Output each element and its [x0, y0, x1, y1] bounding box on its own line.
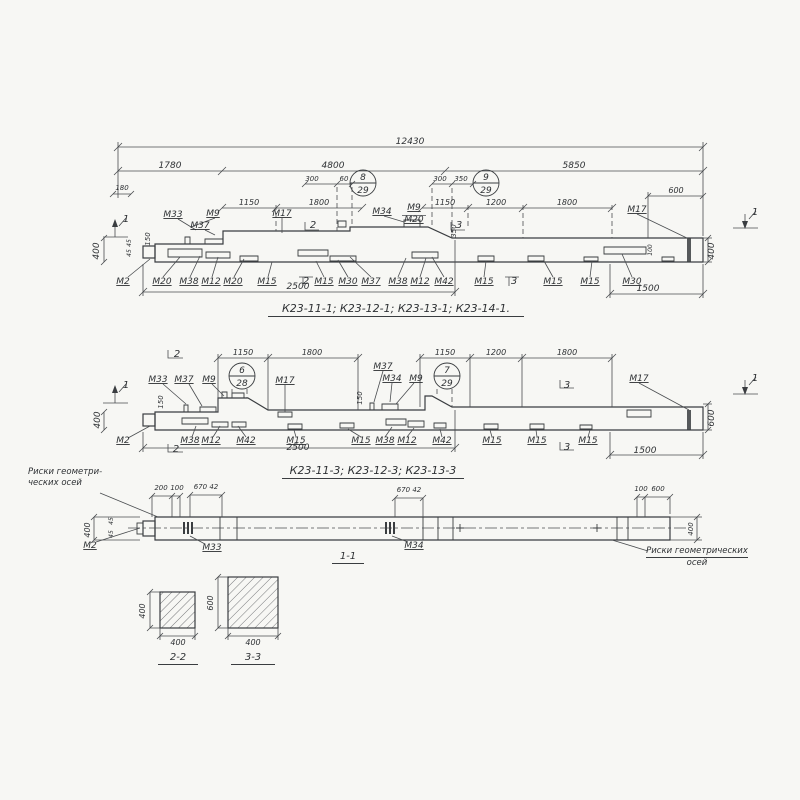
- annotation-label: М9: [407, 203, 421, 213]
- bar-outline: [155, 517, 670, 540]
- annotation-label: М42: [434, 277, 453, 287]
- view2-caption: К23-11-3; К23-12-3; К23-13-3: [282, 464, 464, 479]
- annotation-label: 45: [126, 249, 133, 257]
- sec2-dim-400v: [147, 589, 160, 631]
- view1-caption: К23-11-1; К23-12-1; К23-13-1; К23-14-1.: [268, 302, 524, 317]
- note-right-line2: осей: [687, 558, 708, 568]
- section3-caption: 3-3: [231, 652, 275, 665]
- annotation-label: 1780: [159, 161, 182, 171]
- detail-circle-number: 7: [444, 366, 450, 376]
- annotation-label: М34: [404, 541, 423, 551]
- note-axes-right: Риски геометрических осей: [612, 546, 782, 568]
- annotation-label: 3: [564, 442, 570, 453]
- annotation-label: 1800: [557, 348, 577, 357]
- annotation-label: М20: [223, 277, 242, 287]
- annotation-label: М38: [179, 277, 198, 287]
- detail-circle-number: 29: [480, 186, 492, 196]
- annotation-label: 45: [108, 517, 115, 525]
- annotation-label: 2500: [287, 443, 310, 453]
- annotation-label: М12: [201, 436, 220, 446]
- view1-beam-elevation: [101, 142, 758, 298]
- beam1-left-tenon: [143, 246, 155, 258]
- annotation-label: 400: [687, 522, 695, 536]
- dim3-670-mid: [392, 495, 426, 517]
- annotation-label: 600: [668, 186, 683, 195]
- annotation-label: М9: [202, 375, 216, 385]
- annotation-label: 600: [651, 485, 665, 493]
- annotation-label: М38: [388, 277, 407, 287]
- beam1-outline: [155, 227, 703, 262]
- section-2-2-body: [160, 592, 195, 628]
- dim3-100-600: [634, 494, 673, 517]
- annotation-label: 300: [433, 175, 447, 183]
- annotation-label: М38: [180, 436, 199, 446]
- annotation-label: 1500: [637, 284, 660, 294]
- dim2-1500: [606, 432, 707, 459]
- annotation-label: 5850: [563, 161, 586, 171]
- annotation-label: 12430: [396, 137, 425, 147]
- note-left-line1: Риски геометри-: [28, 467, 102, 477]
- beam1-top-plates: [185, 220, 420, 244]
- dim3-200-100: [149, 493, 183, 517]
- annotation-label: М12: [201, 277, 220, 287]
- beam2-outline: [155, 396, 703, 430]
- beam1-anchor-strip: [687, 238, 691, 262]
- dim-1780-4800-5850: [114, 167, 707, 175]
- annotation-label: М15: [351, 436, 370, 446]
- view3-caption: 1-1: [332, 551, 364, 564]
- annotation-label: 1150: [435, 348, 455, 357]
- annotation-label: 1200: [486, 348, 506, 357]
- annotation-label: М37: [174, 375, 193, 385]
- annotation-label: М37: [373, 362, 392, 372]
- annotation-label: М34: [382, 374, 401, 384]
- annotation-label: М12: [397, 436, 416, 446]
- detail-circle-number: 9: [483, 173, 489, 183]
- annotation-label: 1200: [486, 198, 506, 207]
- annotation-label: 1: [752, 207, 758, 218]
- beam2-construction-lines: [232, 389, 452, 407]
- annotation-label: 4800: [322, 161, 345, 171]
- annotation-label: М20: [152, 277, 171, 287]
- detail-circle: 929: [473, 170, 499, 196]
- beam2-left-tenon: [143, 414, 155, 426]
- annotation-label: М17: [627, 205, 646, 215]
- dim-600: [645, 192, 706, 238]
- view3-leader-lines: [96, 493, 648, 551]
- annotation-label: 670 42: [397, 486, 422, 494]
- detail-circle-number: 29: [441, 379, 453, 389]
- section1-arrow-left2: [112, 385, 118, 393]
- detail-circle: 829: [350, 170, 376, 196]
- detail-circle-number: 28: [236, 379, 248, 389]
- annotation-label: М15: [543, 277, 562, 287]
- annotation-label: М37: [190, 221, 209, 231]
- beam1-bottom-plates: [168, 247, 674, 261]
- detail-circle-number: 6: [239, 366, 245, 376]
- annotation-label: 2: [173, 444, 179, 455]
- section-cut-flags2: [168, 350, 574, 452]
- annotation-label: М33: [163, 210, 182, 220]
- annotation-label: 1: [123, 380, 129, 391]
- annotation-label: М15: [257, 277, 276, 287]
- annotation-label: 200: [154, 484, 168, 492]
- annotation-layer: 1243017804800585018030060300350115018001…: [83, 137, 758, 647]
- beam1-construction-lines: [276, 187, 612, 238]
- dim3-400-right: [670, 514, 702, 543]
- bar-divisions: [220, 517, 628, 540]
- annotation-label: М15: [474, 277, 493, 287]
- annotation-label: 670 42: [194, 483, 219, 491]
- note-left-line2: ческих осей: [28, 478, 82, 488]
- annotation-label: М15: [580, 277, 599, 287]
- annotation-label: 150: [356, 391, 364, 405]
- annotation-label: М20: [404, 215, 423, 225]
- annotation-label: 300: [305, 175, 319, 183]
- detail-circle: 729: [434, 363, 460, 389]
- annotation-label: 1: [752, 373, 758, 384]
- annotation-label: 1500: [634, 446, 657, 456]
- annotation-label: 400: [83, 522, 92, 537]
- annotation-label: М38: [375, 436, 394, 446]
- annotation-label: М42: [236, 436, 255, 446]
- annotation-label: М30: [338, 277, 357, 287]
- drawing-sheet: 1243017804800585018030060300350115018001…: [0, 0, 800, 800]
- dim3-400-left: [91, 514, 140, 543]
- annotation-label: 45: [108, 530, 115, 538]
- annotation-label: М15: [527, 436, 546, 446]
- section2-caption: 2-2: [158, 652, 198, 665]
- annotation-label: М17: [629, 374, 648, 384]
- section-3-3-body: [228, 577, 278, 628]
- annotation-label: 350: [450, 224, 458, 238]
- detail-circle: 628: [229, 363, 255, 389]
- annotation-label: 1: [123, 214, 129, 225]
- annotation-label: М17: [272, 209, 291, 219]
- annotation-label: 45: [126, 239, 133, 247]
- annotation-label: 3: [564, 380, 570, 391]
- annotation-label: 1800: [557, 198, 577, 207]
- bar-left-tenon: [143, 521, 155, 536]
- annotation-label: М2: [83, 541, 97, 551]
- annotation-label: 400: [170, 638, 185, 647]
- annotation-label: 3: [511, 276, 517, 287]
- annotation-label: М2: [116, 436, 130, 446]
- annotation-label: 100: [647, 244, 654, 256]
- detail-circle-number: 29: [357, 186, 369, 196]
- annotation-label: 600: [707, 409, 717, 426]
- annotation-label: 350: [454, 175, 468, 183]
- annotation-label: М37: [361, 277, 380, 287]
- dim3-670-left: [187, 492, 225, 517]
- annotation-label: М15: [314, 277, 333, 287]
- annotation-label: 400: [92, 242, 102, 259]
- annotation-label: 1800: [302, 348, 322, 357]
- annotation-label: 1800: [309, 198, 329, 207]
- technical-drawing: 1243017804800585018030060300350115018001…: [0, 0, 800, 800]
- annotation-label: 2500: [287, 282, 310, 292]
- annotation-label: 60: [340, 175, 349, 183]
- annotation-label: М2: [116, 277, 130, 287]
- note-right-line1: Риски геометрических: [646, 546, 748, 558]
- beam2-anchor-strip: [687, 410, 691, 430]
- detail-circle-number: 8: [360, 173, 366, 183]
- note-axes-left: Риски геометри- ческих осей: [28, 467, 138, 488]
- annotation-label: 150: [144, 232, 152, 246]
- annotation-label: 2: [174, 349, 180, 360]
- annotation-label: 2: [310, 220, 316, 231]
- annotation-label: М17: [275, 376, 294, 386]
- annotation-label: 400: [138, 603, 147, 618]
- annotation-label: 400: [245, 638, 260, 647]
- view3-section-1-1: [91, 492, 702, 551]
- annotation-label: М9: [206, 209, 220, 219]
- sec3-dim-600v: [215, 574, 228, 631]
- beam2-top-plates: [184, 392, 398, 417]
- annotation-label: 150: [157, 395, 165, 409]
- annotation-label: М15: [578, 436, 597, 446]
- annotation-label: М42: [432, 436, 451, 446]
- annotation-label: М34: [372, 207, 391, 217]
- annotation-label: 1150: [239, 198, 259, 207]
- annotation-label: М12: [410, 277, 429, 287]
- annotation-label: 180: [115, 184, 129, 192]
- annotation-label: 1150: [233, 348, 253, 357]
- annotation-label: 400: [93, 411, 103, 428]
- annotation-label: М9: [409, 374, 423, 384]
- annotation-label: М15: [482, 436, 501, 446]
- annotation-label: 600: [206, 595, 215, 610]
- annotation-label: М33: [148, 375, 167, 385]
- annotation-label: 100: [170, 484, 184, 492]
- beam2-bottom-plates: [182, 410, 651, 429]
- annotation-label: 100: [634, 485, 648, 493]
- annotation-label: 400: [707, 242, 717, 259]
- section1-arrow-left: [112, 219, 118, 227]
- annotation-label: М33: [202, 543, 221, 553]
- annotation-label: 1150: [435, 198, 455, 207]
